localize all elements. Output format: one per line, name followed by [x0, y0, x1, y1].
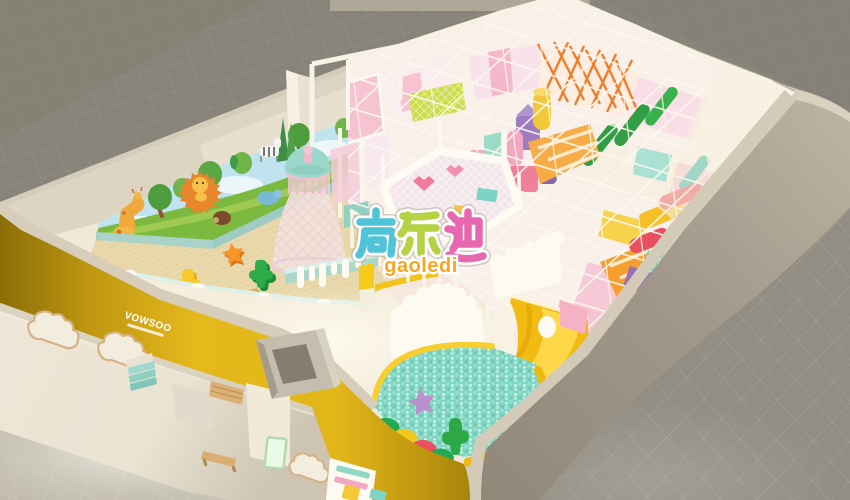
- svg-text:gaoledi: gaoledi: [384, 255, 458, 277]
